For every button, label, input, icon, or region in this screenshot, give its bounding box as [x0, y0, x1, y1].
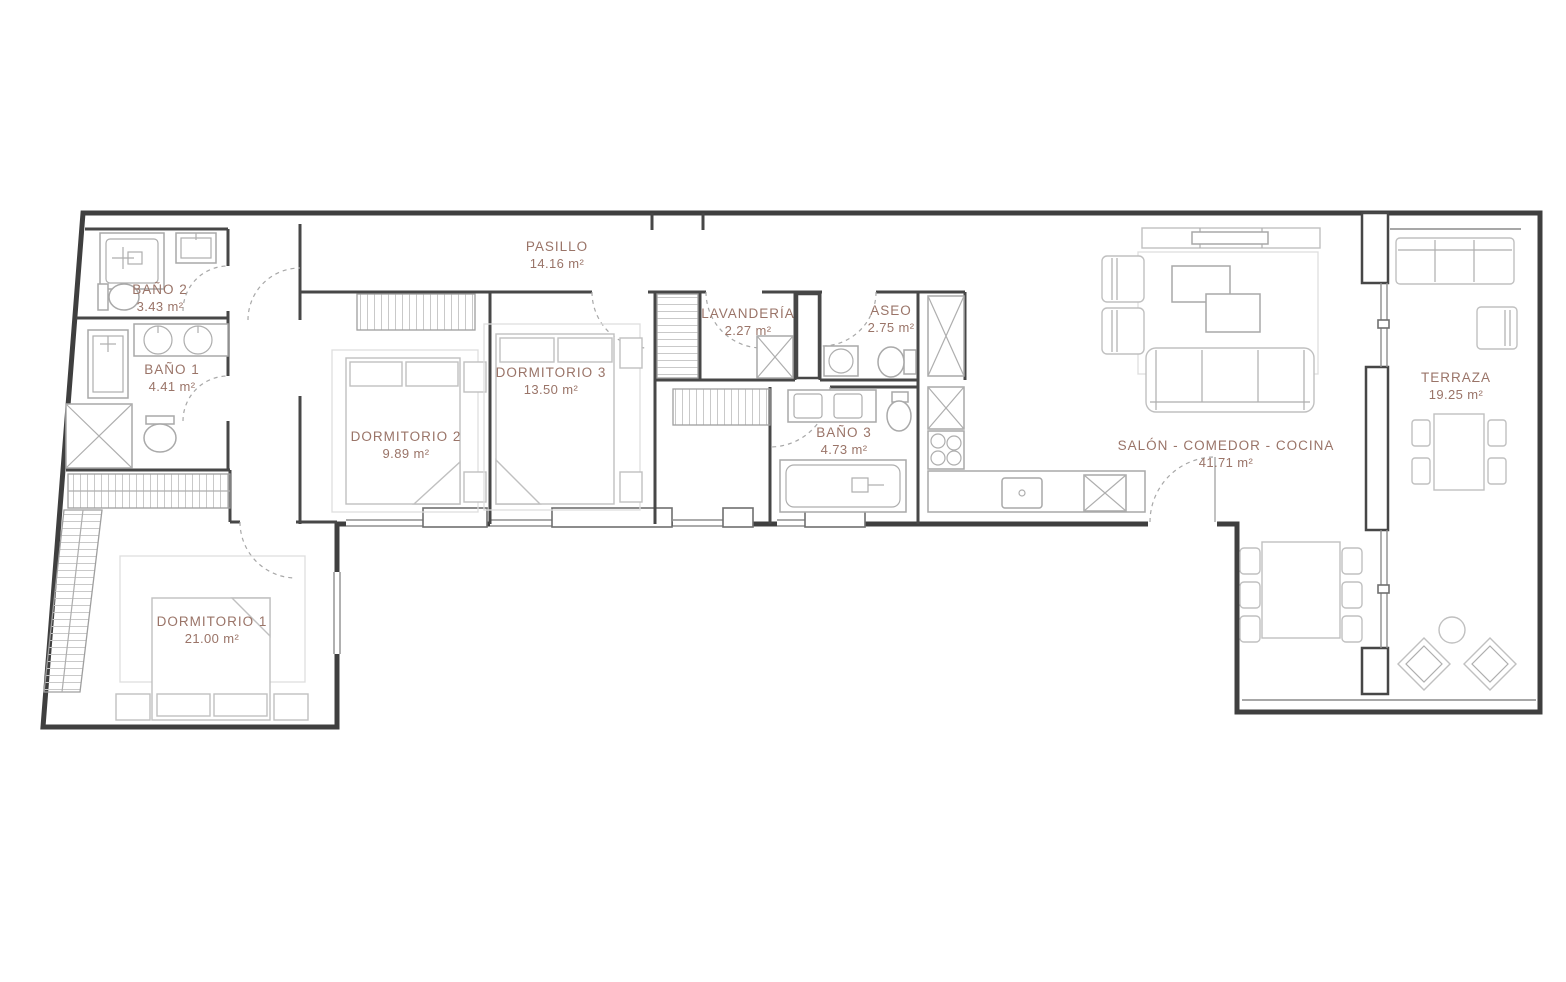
room-area: 13.50 m² [496, 382, 607, 397]
pillow-icon [157, 694, 210, 716]
chair-icon [1240, 582, 1260, 608]
nightstand-icon [464, 362, 486, 392]
room-area: 4.73 m² [816, 442, 872, 457]
linen-closet [657, 294, 698, 378]
floor-plan-page: BAÑO 2 3.43 m² BAÑO 1 4.41 m² PASILLO 14… [0, 0, 1566, 982]
living-room-furniture [1102, 228, 1320, 412]
room-area: 19.25 m² [1421, 387, 1491, 402]
coffee-table-icon [1206, 294, 1260, 332]
armchair-icon [1102, 308, 1144, 354]
terrace-wall-pillar [1366, 367, 1388, 530]
pillow-icon [214, 694, 267, 716]
dining-table-icon [1262, 542, 1340, 638]
facade-windows [331, 508, 1217, 654]
chair-icon [1488, 420, 1506, 446]
nightstand-icon [464, 472, 486, 502]
room-area: 9.89 m² [351, 446, 462, 461]
room-area: 14.16 m² [526, 256, 588, 271]
room-name: DORMITORIO 1 [157, 614, 268, 629]
nightstand-icon [620, 338, 642, 368]
chair-icon [1488, 458, 1506, 484]
chair-icon [1240, 616, 1260, 642]
nightstand-icon [116, 694, 150, 720]
room-name: BAÑO 3 [816, 425, 872, 440]
room-label-bano1: BAÑO 1 4.41 m² [144, 362, 200, 394]
bathtub-icon [780, 460, 906, 512]
tv-icon [1192, 232, 1268, 244]
pillow-icon [500, 338, 554, 362]
room-label-dormitorio1: DORMITORIO 1 21.00 m² [157, 614, 268, 646]
room-name: BAÑO 2 [132, 282, 188, 297]
room-label-lavanderia: LAVANDERÍA 2.27 m² [701, 306, 795, 338]
vanity-icon [134, 324, 228, 356]
floor-plan-drawing [0, 0, 1566, 982]
terrace-wall-stub [1362, 213, 1388, 283]
room-name: PASILLO [526, 239, 588, 254]
hall-wardrobe [673, 389, 770, 425]
pillow-icon [558, 338, 612, 362]
room-name: LAVANDERÍA [701, 306, 795, 321]
dining-furniture [1240, 542, 1362, 642]
chair-icon [1342, 616, 1362, 642]
door-dormitorio1 [240, 522, 296, 578]
chair-icon [1240, 548, 1260, 574]
terrace-wall-stub [1362, 648, 1388, 694]
room-area: 21.00 m² [157, 631, 268, 646]
room-label-salon: SALÓN - COMEDOR - COCINA 41.71 m² [1118, 438, 1335, 470]
chair-icon [1412, 458, 1430, 484]
outdoor-armchair-icon [1477, 307, 1517, 349]
wardrobe-dormitorio2 [357, 294, 475, 330]
bano1-fixtures [66, 324, 228, 468]
nightstand-icon [274, 694, 308, 720]
toilet-tank-icon [904, 350, 916, 374]
toilet-icon [887, 401, 911, 431]
room-name: ASEO [868, 303, 915, 318]
room-area: 4.41 m² [144, 379, 200, 394]
chair-icon [1342, 548, 1362, 574]
room-name: DORMITORIO 3 [496, 365, 607, 380]
toilet-icon [878, 347, 904, 377]
room-label-bano2: BAÑO 2 3.43 m² [132, 282, 188, 314]
room-name: TERRAZA [1421, 370, 1491, 385]
outdoor-table-icon [1434, 414, 1484, 490]
pillow-icon [350, 362, 402, 386]
chair-icon [1342, 582, 1362, 608]
room-label-dormitorio3: DORMITORIO 3 13.50 m² [496, 365, 607, 397]
outdoor-sofa-icon [1396, 238, 1514, 284]
entrance-opening [1148, 517, 1217, 531]
sink-icon [1002, 478, 1042, 508]
room-name: BAÑO 1 [144, 362, 200, 377]
room-name: DORMITORIO 2 [351, 429, 462, 444]
side-table-icon [1439, 617, 1465, 643]
room-area: 2.27 m² [701, 323, 795, 338]
facade-pier [723, 508, 753, 527]
room-label-bano3: BAÑO 3 4.73 m² [816, 425, 872, 457]
nightstand-icon [620, 472, 642, 502]
door-bano2 [183, 266, 228, 311]
duct-wall [797, 294, 819, 378]
room-label-aseo: ASEO 2.75 m² [868, 303, 915, 335]
kitchen-fixtures [928, 387, 1145, 512]
room-area: 3.43 m² [132, 299, 188, 314]
toilet-icon [144, 424, 176, 452]
room-area: 41.71 m² [1118, 455, 1335, 470]
dormitorio3-furniture [484, 324, 642, 510]
terrace-furniture [1396, 238, 1517, 690]
room-area: 2.75 m² [868, 320, 915, 335]
armchair-icon [1102, 256, 1144, 302]
vanity-icon [788, 390, 876, 422]
door-dormitorio2 [248, 268, 300, 320]
lavanderia-fixtures [757, 336, 793, 378]
pillow-icon [406, 362, 458, 386]
shower-tray-icon [100, 233, 164, 289]
chair-icon [1412, 420, 1430, 446]
room-label-terraza: TERRAZA 19.25 m² [1421, 370, 1491, 402]
room-name: SALÓN - COMEDOR - COCINA [1118, 438, 1335, 453]
toilet-tank-icon [146, 416, 174, 424]
room-label-pasillo: PASILLO 14.16 m² [526, 239, 588, 271]
room-label-dormitorio2: DORMITORIO 2 9.89 m² [351, 429, 462, 461]
toilet-tank-icon [98, 284, 108, 310]
